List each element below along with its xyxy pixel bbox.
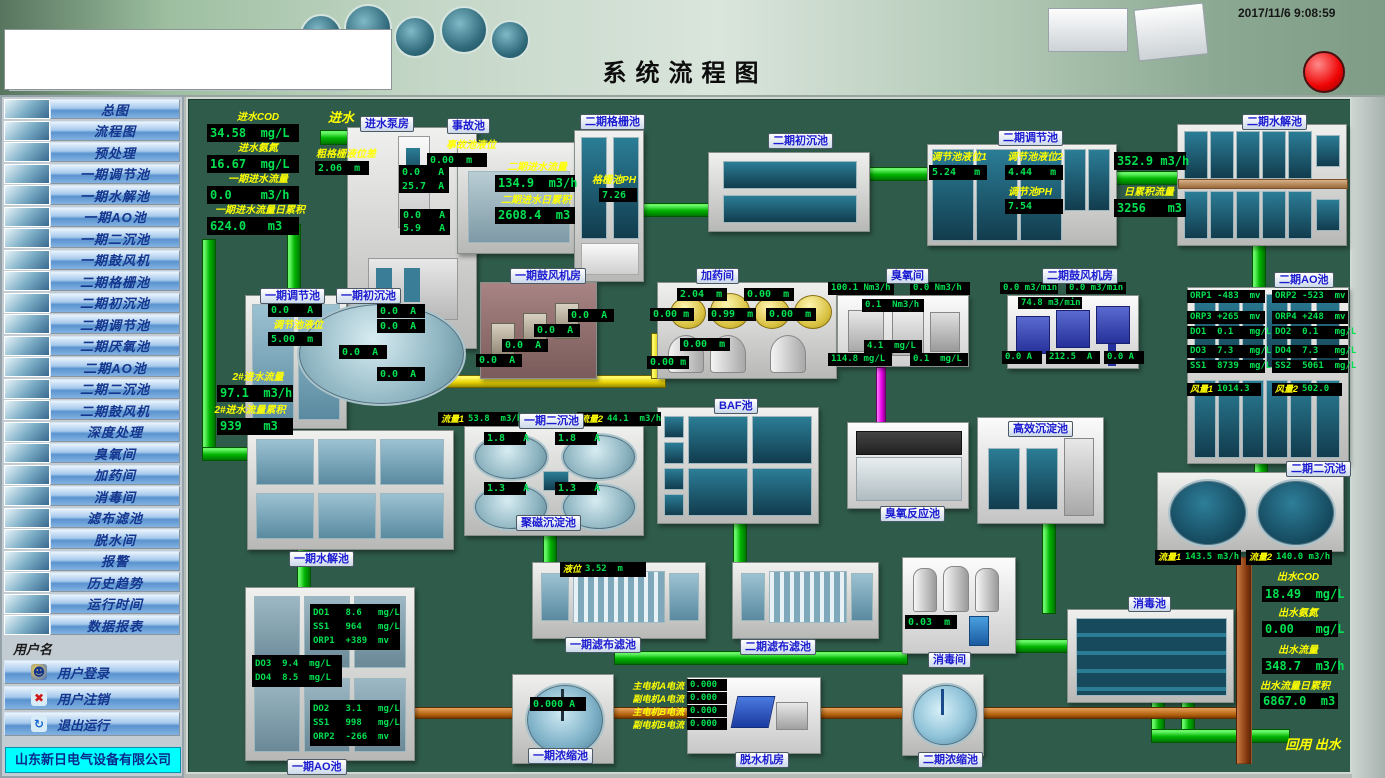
user-login-button[interactable]: ☻ 用户登录 <box>4 660 180 684</box>
sidebar-item-label: 运行时间 <box>50 594 180 614</box>
header-building-graphic <box>1048 8 1128 52</box>
page-title: 系统流程图 <box>555 53 815 88</box>
pump-current-value: 5.9 A <box>400 222 450 235</box>
sidebar-item[interactable]: 流程图 <box>4 121 180 141</box>
sidebar-item[interactable]: 一期水解池 <box>4 185 180 205</box>
exit-run-icon: ↻ <box>31 716 47 732</box>
sidebar-item-thumbnail <box>4 379 50 399</box>
phase1-cloth-filter-plate[interactable]: 一期滤布滤池 <box>565 637 641 653</box>
sidebar-item-label: 脱水间 <box>50 529 180 549</box>
dosing-tank-level: 0.00 m <box>744 288 794 301</box>
line2-inflow-total-value: 939 m3 <box>217 418 293 435</box>
phase2-primary-sed-plate[interactable]: 二期初沉池 <box>768 133 833 149</box>
ao2-airflow2: 风量2502.0 <box>1272 383 1342 396</box>
sidebar-item[interactable]: 二期格栅池 <box>4 271 180 291</box>
blower-current: 0.0 A <box>1104 351 1144 364</box>
sidebar-item-label: 二期AO池 <box>50 357 180 377</box>
influent-nh3-label: 进水氨氮 <box>208 143 308 155</box>
sidebar-item-label: 一期调节池 <box>50 164 180 184</box>
line2-inflow-total-label: 2#进水流量累积 <box>196 405 304 417</box>
phase1-thickener-plate[interactable]: 一期浓缩池 <box>528 748 593 764</box>
sidebar-item-thumbnail <box>4 594 50 614</box>
sidebar-item-thumbnail <box>4 551 50 571</box>
sidebar-item[interactable]: 深度处理 <box>4 422 180 442</box>
sidebar-item-thumbnail <box>4 615 50 635</box>
ozone-reaction-pool-graphic <box>847 422 969 509</box>
effluent-flow-total-label: 出水流量日累积 <box>1252 681 1338 693</box>
effluent-flow-total-value: 6867.0 m3 <box>1260 693 1338 709</box>
phase2-ao-pool-plate[interactable]: 二期AO池 <box>1274 272 1334 288</box>
phase2-thickener-graphic <box>902 674 984 756</box>
phase1-ao-pool-plate[interactable]: 一期AO池 <box>287 759 347 775</box>
effluent-nh3-label: 出水氨氮 <box>1270 608 1326 620</box>
ao2-orp2: ORP2 -523 mv <box>1272 290 1348 303</box>
sidebar-item-label: 二期厌氧池 <box>50 336 180 356</box>
dosing-tank-level: 0.99 m <box>708 308 756 321</box>
reuse-effluent-label: 回用 出水 <box>1278 737 1348 752</box>
window-right-strip <box>1352 97 1385 778</box>
pipe-green <box>642 203 714 217</box>
pipe-brown-vertical <box>1236 557 1252 764</box>
magnetic-coag-pool-plate[interactable]: 聚磁沉淀池 <box>516 515 581 531</box>
motor-current: 0.000 <box>687 679 727 691</box>
pipe-green <box>867 167 931 181</box>
blower-current: 212.5 A <box>1046 351 1100 364</box>
alarm-indicator-lamp[interactable] <box>1303 51 1345 93</box>
disinfection-level: 0.03 m <box>905 615 957 629</box>
sidebar-item-thumbnail <box>4 508 50 528</box>
line2-inflow-label: 2#进水流量 <box>220 372 296 384</box>
motor-current: 0.000 <box>687 692 727 704</box>
sidebar-item-label: 二期二沉池 <box>50 379 180 399</box>
sidebar-item[interactable]: 报警 <box>4 551 180 571</box>
phase1-primary-sed-plate[interactable]: 一期初沉池 <box>336 288 401 304</box>
regulating-level2-label: 调节池液位2 <box>1002 152 1068 164</box>
dosing-tank-level: 0.00 m <box>650 308 694 321</box>
dewatering-room-plate[interactable]: 脱水机房 <box>735 752 789 768</box>
influent-flow1-label: 一期进水流量 <box>202 174 314 186</box>
motor-label: 副电机B电流 <box>620 719 684 731</box>
effluent-nh3-value: 0.00 mg/L <box>1262 621 1338 637</box>
dosing-room-plate[interactable]: 加药间 <box>696 268 739 284</box>
scraper-current: 1.8 A <box>484 432 526 445</box>
phase2-cloth-filter-graphic <box>732 562 879 639</box>
sidebar-item[interactable]: 预处理 <box>4 142 180 162</box>
inflow-label: 进水 <box>321 110 361 125</box>
blower-current: 0.0 A <box>534 324 580 337</box>
pipe-green <box>1110 171 1184 185</box>
sidebar-item-thumbnail <box>4 121 50 141</box>
motor-current: 0.000 <box>687 718 727 730</box>
sidebar-item-thumbnail <box>4 357 50 377</box>
ao2-do3: DO3 7.3 mg/L <box>1187 345 1265 358</box>
sidebar-item[interactable]: 消毒间 <box>4 486 180 506</box>
pipe-green <box>733 520 747 566</box>
filter-level: 液位3.52 m <box>560 562 646 577</box>
sidebar: 总图 流程图 预处理 一期调节池 一期水解池 <box>0 95 184 778</box>
header-clarifier-graphic <box>490 20 530 60</box>
influent-flow1-value: 0.0 m3/h <box>207 186 299 204</box>
username-label: 用户名 <box>13 639 181 658</box>
sed-drive-current: 0.0 A <box>377 304 425 318</box>
header-building-graphic <box>1133 2 1208 61</box>
phase2-flow-value: 352.9 m3/h <box>1114 152 1186 170</box>
phase1-regulating-level-value: 5.00 m <box>268 332 322 346</box>
sidebar-item-label: 一期AO池 <box>50 207 180 227</box>
sidebar-item-label: 流程图 <box>50 121 180 141</box>
sidebar-item[interactable]: 二期调节池 <box>4 314 180 334</box>
ozone-conc: 0.1 mg/L <box>910 353 968 366</box>
ao1-readout-top: DO1 8.6 mg/LSS1 964 mg/LORP1 +389 mv <box>310 604 400 650</box>
sidebar-item-thumbnail <box>4 422 50 442</box>
sidebar-item[interactable]: 滤布滤池 <box>4 508 180 528</box>
baf-pool-graphic <box>657 407 819 524</box>
phase2-secondary-sed-plate[interactable]: 二期二沉池 <box>1286 461 1351 477</box>
process-flow-canvas: 进水COD 34.58 mg/L 进水氨氮 16.67 mg/L 一期进水流量 … <box>186 97 1352 774</box>
motor-label: 副电机A电流 <box>620 693 684 705</box>
sidebar-item-label: 消毒间 <box>50 486 180 506</box>
phase2-hydrolysis-pool-plate[interactable]: 二期水解池 <box>1242 114 1307 130</box>
sidebar-item-label: 总图 <box>50 99 180 119</box>
influent-flow1-total-value: 624.0 m3 <box>207 217 299 235</box>
sed-drive-current: 0.0 A <box>339 345 387 359</box>
sidebar-item[interactable]: 总图 <box>4 99 180 119</box>
sidebar-item-label: 预处理 <box>50 142 180 162</box>
header-clarifier-graphic <box>394 16 436 58</box>
sidebar-item[interactable]: 加药间 <box>4 465 180 485</box>
sidebar-item[interactable]: 运行时间 <box>4 594 180 614</box>
sidebar-item-label: 一期水解池 <box>50 185 180 205</box>
regulating-ph-label: 调节池PH <box>1005 187 1055 199</box>
dosing-tank-level: 0.00 m <box>647 356 689 369</box>
user-login-icon: ☻ <box>31 664 47 680</box>
sidebar-item[interactable]: 一期二沉池 <box>4 228 180 248</box>
sidebar-item[interactable]: 一期AO池 <box>4 207 180 227</box>
ao2-do4: DO4 7.3 mg/L <box>1272 345 1348 358</box>
phase2-cloth-filter-plate[interactable]: 二期滤布滤池 <box>740 639 816 655</box>
header-clarifier-graphic <box>440 6 488 54</box>
influent-flow1-total-label: 一期进水流量日累积 <box>190 205 330 217</box>
scraper-current: 1.3 A <box>555 482 597 495</box>
sidebar-item-thumbnail <box>4 228 50 248</box>
influent-nh3-value: 16.67 mg/L <box>207 155 299 173</box>
header-photo-banner: 系统流程图 2017/11/6 9:08:59 <box>0 0 1385 97</box>
user-logout-icon: ✖ <box>31 690 47 706</box>
high-eff-sed-plate[interactable]: 高效沉淀池 <box>1008 421 1073 437</box>
effluent-flow-value: 348.7 m3/h <box>1262 658 1338 674</box>
effluent-cod-value: 18.49 mg/L <box>1262 586 1338 602</box>
exit-run-button[interactable]: ↻ 退出运行 <box>4 712 180 736</box>
sidebar-item-thumbnail <box>4 142 50 162</box>
sidebar-item-thumbnail <box>4 293 50 313</box>
sidebar-item[interactable]: 数据报表 <box>4 615 180 635</box>
coarse-screen-level-value: 2.06 m <box>315 161 369 175</box>
pump-current-value: 25.7 A <box>399 179 449 193</box>
grid-pool-ph-value: 7.26 <box>599 188 637 202</box>
sidebar-item-thumbnail <box>4 99 50 119</box>
sidebar-item-label: 二期格栅池 <box>50 271 180 291</box>
blower-airflow: 74.8 m3/min <box>1018 297 1082 309</box>
ao2-airflow1: 风量11014.3 <box>1187 383 1261 396</box>
sidebar-item-thumbnail <box>4 572 50 592</box>
blower-current: 0.0 A <box>502 339 548 352</box>
scraper-current: 1.8 A <box>555 432 597 445</box>
phase1-hydrolysis-pool-plate[interactable]: 一期水解池 <box>289 551 354 567</box>
header-blank-panel <box>4 29 392 90</box>
sidebar-item-thumbnail <box>4 271 50 291</box>
ozone-reaction-pool-plate[interactable]: 臭氧反应池 <box>880 506 945 522</box>
motor-label: 主电机A电流 <box>620 680 684 692</box>
ao2-do2: DO2 0.1 mg/L <box>1272 326 1348 339</box>
phase2-inflow-total-value: 2608.4 m3 <box>495 207 575 224</box>
disinfection-room-plate[interactable]: 消毒间 <box>928 652 971 668</box>
user-logout-button[interactable]: ✖ 用户注销 <box>4 686 180 710</box>
sidebar-item-thumbnail <box>4 486 50 506</box>
phase2-hydrolysis-pool-graphic <box>1177 124 1347 246</box>
pipe-green <box>1252 244 1266 292</box>
dosing-tank-level: 2.04 m <box>677 288 727 301</box>
dosing-tank-level: 0.00 m <box>766 308 816 321</box>
blower-current: 0.0 A <box>476 354 522 367</box>
pump-current-value: 0.0 A <box>399 165 449 179</box>
phase1-blower-room-plate[interactable]: 一期鼓风机房 <box>510 268 586 284</box>
sidebar-menu: 总图 流程图 预处理 一期调节池 一期水解池 <box>3 99 181 635</box>
ozone-room-plate[interactable]: 臭氧间 <box>886 268 929 284</box>
ao2-ss2: SS2 5061 mg/L <box>1272 360 1348 373</box>
phase2-inflow-total-label: 二期进水日累积 <box>492 195 580 207</box>
phase2-blower-room-plate[interactable]: 二期鼓风机房 <box>1042 268 1118 284</box>
ao2-orp4: ORP4 +248 mv <box>1272 311 1348 324</box>
ao1-readout-bottom: DO2 3.1 mg/LSS1 998 mg/LORP2 -266 mv <box>310 700 400 746</box>
company-name-bar: 山东新日电气设备有限公司 <box>5 747 181 773</box>
motor-current: 0.000 <box>687 705 727 717</box>
sidebar-item[interactable]: 二期厌氧池 <box>4 336 180 356</box>
sidebar-item-label: 加药间 <box>50 465 180 485</box>
ao2-do1: DO1 0.1 mg/L <box>1187 326 1265 339</box>
pipe-magenta-ozone <box>876 367 886 429</box>
accident-pool-plate[interactable]: 事故池 <box>447 118 490 134</box>
regulating-level2-value: 4.44 m <box>1005 165 1063 180</box>
disinfection-pool-plate[interactable]: 消毒池 <box>1128 596 1171 612</box>
coarse-screen-level-label: 粗格栅液位差 <box>306 149 386 161</box>
pipe-green <box>1010 639 1070 653</box>
regulating-level1-label: 调节池液位1 <box>926 152 992 164</box>
blower-current: 0.0 A <box>1002 351 1042 364</box>
baf-pool-plate[interactable]: BAF池 <box>714 398 758 414</box>
daily-total-flow-value: 3256 m3 <box>1114 199 1186 217</box>
ao1-readout-mid: DO3 9.4 mg/LDO4 8.5 mg/L <box>252 655 342 687</box>
ozone-flow: 100.1 Nm3/h <box>828 282 894 295</box>
influent-cod-label: 进水COD <box>208 112 308 124</box>
blower-current: 0.0 A <box>568 309 614 322</box>
sidebar-item-label: 二期鼓风机 <box>50 400 180 420</box>
ozone-flow: 0.1 Nm3/h <box>862 299 924 312</box>
sed-drive-current: 0.0 A <box>377 367 425 381</box>
line2-inflow-value: 97.1 m3/h <box>217 385 293 402</box>
sed22-flow1: 流量1143.5 m3/h <box>1155 550 1241 565</box>
sidebar-item-thumbnail <box>4 529 50 549</box>
phase2-secondary-sed-graphic <box>1157 472 1344 552</box>
effluent-cod-label: 出水COD <box>1268 572 1328 584</box>
phase2-regulating-pool-plate[interactable]: 二期调节池 <box>998 130 1063 146</box>
ao2-orp1: ORP1 -483 mv <box>1187 290 1265 303</box>
phase2-grid-pool-graphic <box>574 130 644 282</box>
phase1-regulating-pool-plate[interactable]: 一期调节池 <box>260 288 325 304</box>
sidebar-item-label: 报警 <box>50 551 180 571</box>
sidebar-item-thumbnail <box>4 314 50 334</box>
sidebar-item-label: 一期鼓风机 <box>50 250 180 270</box>
motor-label: 主电机B电流 <box>620 706 684 718</box>
sidebar-item[interactable]: 一期调节池 <box>4 164 180 184</box>
effluent-flow-label: 出水流量 <box>1270 645 1326 657</box>
influent-cod-value: 34.58 mg/L <box>207 124 299 142</box>
sidebar-item-label: 数据报表 <box>50 615 180 635</box>
phase2-inflow-label: 二期进水流量 <box>496 162 578 174</box>
sidebar-item[interactable]: 二期初沉池 <box>4 293 180 313</box>
sidebar-item-thumbnail <box>4 250 50 270</box>
regulating-level1-value: 5.24 m <box>929 165 987 180</box>
sidebar-item[interactable]: 历史趋势 <box>4 572 180 592</box>
sidebar-item-label: 臭氧间 <box>50 443 180 463</box>
sidebar-item-thumbnail <box>4 400 50 420</box>
sed22-flow2: 流量2140.0 m3/h <box>1246 550 1332 565</box>
pipe-green <box>1151 729 1290 743</box>
regulating-ph-value: 7.54 <box>1005 199 1063 214</box>
sidebar-item-label: 二期初沉池 <box>50 293 180 313</box>
disinfection-pool-graphic <box>1067 609 1234 703</box>
phase1-hydrolysis-pool-graphic <box>247 430 454 550</box>
sidebar-item-thumbnail <box>4 185 50 205</box>
accident-pool-level-value: 0.00 m <box>427 153 487 167</box>
phase2-primary-sed-graphic <box>708 152 870 232</box>
pipe-green <box>1042 522 1056 614</box>
pump-current-value: 0.0 A <box>400 209 450 222</box>
sidebar-item[interactable]: 一期鼓风机 <box>4 250 180 270</box>
disinfection-room-graphic <box>902 557 1016 654</box>
sidebar-item-thumbnail <box>4 465 50 485</box>
dosing-tank-level: 0.00 m <box>680 338 730 351</box>
sidebar-item[interactable]: 二期二沉池 <box>4 379 180 399</box>
sed12-flow2: 流量244.1 m3/h <box>577 412 661 426</box>
sed12-flow1: 流量153.8 m3/h <box>438 412 518 426</box>
phase1-secondary-sed-plate[interactable]: 一期二沉池 <box>519 413 584 429</box>
ozone-conc: 4.1 mg/L <box>864 340 922 353</box>
accident-pool-level-label: 事故池液位 <box>435 140 507 152</box>
sidebar-item[interactable]: 臭氧间 <box>4 443 180 463</box>
sidebar-item[interactable]: 二期AO池 <box>4 357 180 377</box>
pump-house-plate[interactable]: 进水泵房 <box>360 116 414 132</box>
phase1-regulating-level-label: 调节池液位 <box>268 320 328 332</box>
sidebar-item-thumbnail <box>4 443 50 463</box>
sidebar-item[interactable]: 脱水间 <box>4 529 180 549</box>
ao2-ss1: SS1 8739 mg/L <box>1187 360 1265 373</box>
sidebar-item-label: 二期调节池 <box>50 314 180 334</box>
sidebar-item-thumbnail <box>4 207 50 227</box>
regulating-pump-current: 0.0 A <box>268 303 322 317</box>
pipe-green <box>202 447 250 461</box>
ozone-conc: 114.8 mg/L <box>828 353 892 366</box>
scraper-current: 1.3 A <box>484 482 526 495</box>
sidebar-item-label: 深度处理 <box>50 422 180 442</box>
phase2-inflow-value: 134.9 m3/h <box>495 175 575 192</box>
sidebar-item-label: 历史趋势 <box>50 572 180 592</box>
datetime-display: 2017/11/6 9:08:59 <box>1238 6 1335 20</box>
sidebar-item-label: 一期二沉池 <box>50 228 180 248</box>
sidebar-item[interactable]: 二期鼓风机 <box>4 400 180 420</box>
thickener-current: 0.000 A <box>530 697 586 711</box>
sed-drive-current: 0.0 A <box>377 319 425 333</box>
sidebar-item-thumbnail <box>4 164 50 184</box>
daily-total-flow-label: 日累积流量 <box>1116 187 1182 199</box>
grid-pool-ph-label: 格栅池PH <box>590 175 638 187</box>
ao2-orp3: ORP3 +265 mv <box>1187 311 1265 324</box>
phase2-grid-pool-plate[interactable]: 二期格栅池 <box>580 114 645 130</box>
pipe-green <box>202 239 216 461</box>
sidebar-item-label: 滤布滤池 <box>50 508 180 528</box>
sidebar-item-thumbnail <box>4 336 50 356</box>
phase2-thickener-plate[interactable]: 二期浓缩池 <box>918 752 983 768</box>
